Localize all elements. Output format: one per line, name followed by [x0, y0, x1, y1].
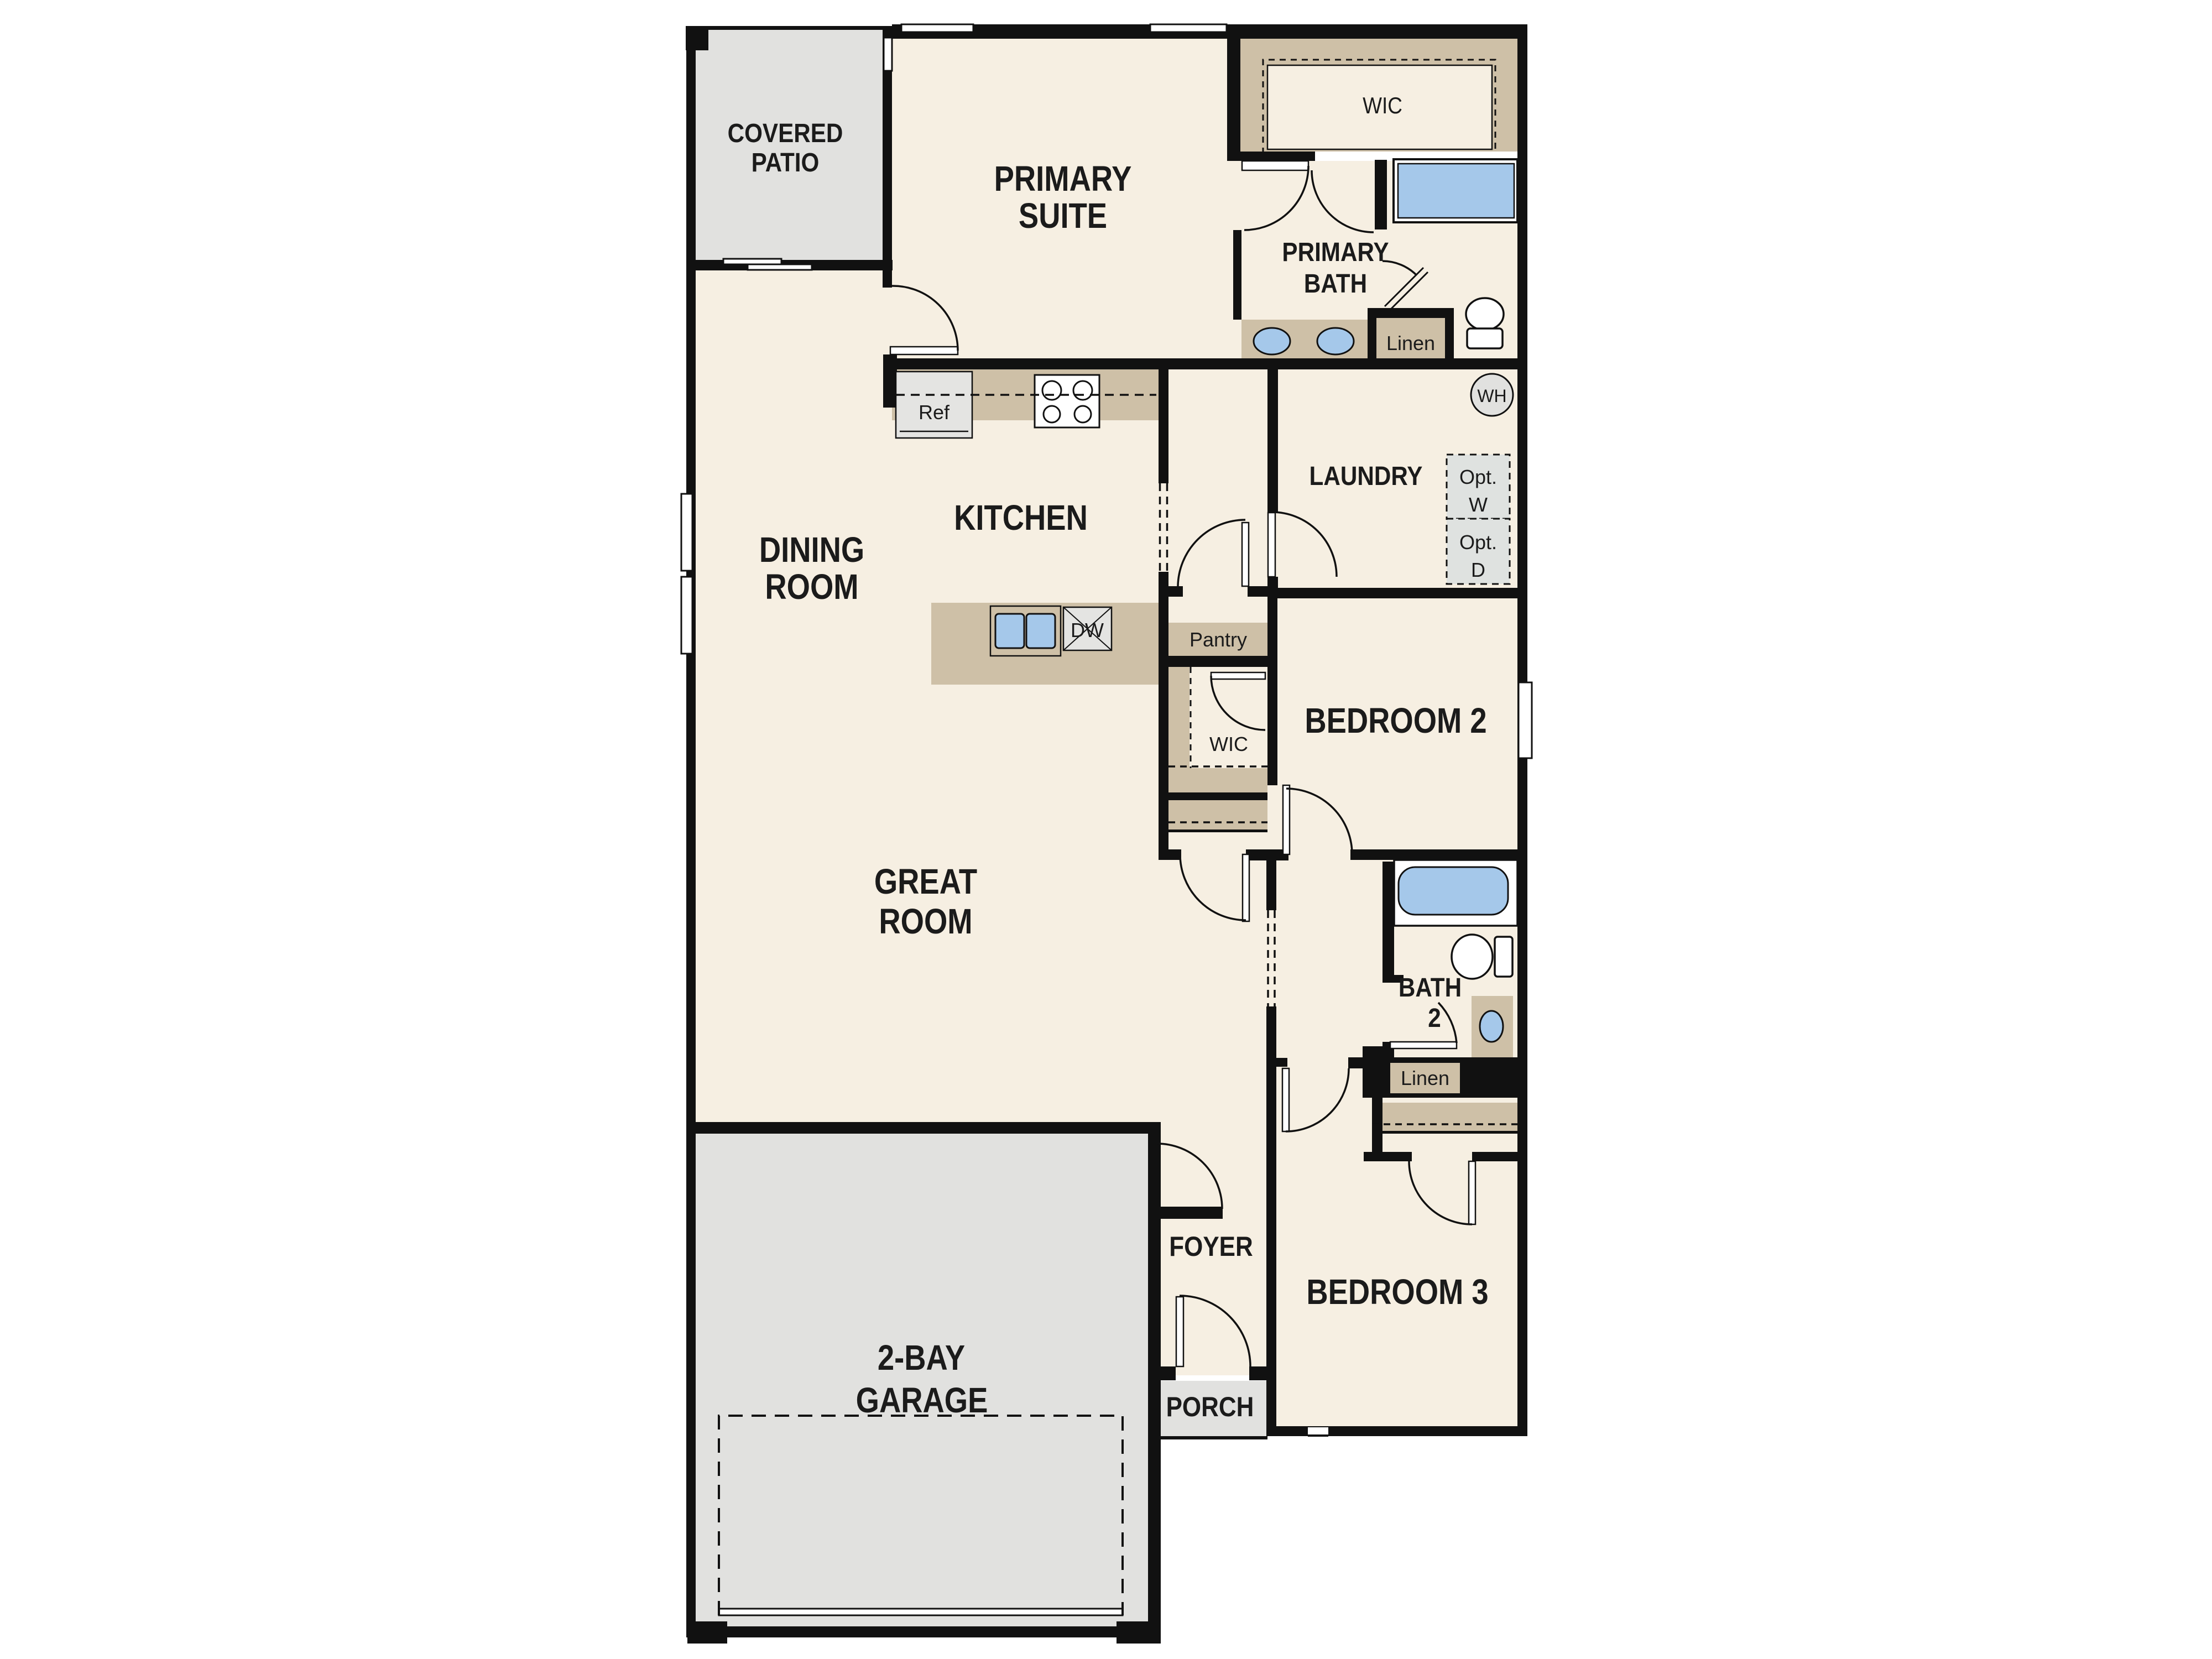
svg-text:Opt.: Opt.: [1459, 466, 1497, 488]
svg-text:2-BAY: 2-BAY: [878, 1338, 965, 1378]
svg-text:Ref: Ref: [919, 401, 950, 424]
svg-text:KITCHEN: KITCHEN: [954, 498, 1088, 538]
svg-text:BATH: BATH: [1399, 972, 1462, 1002]
svg-text:BEDROOM 3: BEDROOM 3: [1306, 1272, 1488, 1312]
svg-text:Pantry: Pantry: [1190, 628, 1247, 651]
svg-text:WIC: WIC: [1209, 733, 1248, 755]
svg-text:GREAT: GREAT: [874, 862, 977, 901]
svg-text:Linen: Linen: [1386, 332, 1435, 354]
svg-text:BATH: BATH: [1304, 268, 1367, 298]
svg-text:BEDROOM 2: BEDROOM 2: [1305, 701, 1486, 740]
svg-text:W: W: [1469, 493, 1488, 516]
svg-text:Opt.: Opt.: [1459, 531, 1497, 554]
svg-text:WIC: WIC: [1363, 93, 1402, 119]
svg-text:ROOM: ROOM: [879, 901, 972, 941]
svg-text:2: 2: [1428, 1003, 1441, 1032]
svg-text:LAUNDRY: LAUNDRY: [1310, 461, 1423, 491]
svg-text:SUITE: SUITE: [1019, 196, 1107, 236]
svg-text:COVERED: COVERED: [728, 118, 843, 148]
svg-text:GARAGE: GARAGE: [856, 1380, 988, 1420]
svg-text:PATIO: PATIO: [752, 147, 820, 177]
svg-text:ROOM: ROOM: [765, 567, 858, 607]
svg-text:Linen: Linen: [1401, 1067, 1449, 1089]
svg-text:D: D: [1471, 559, 1485, 581]
svg-text:DW: DW: [1071, 619, 1104, 641]
svg-text:PRIMARY: PRIMARY: [1282, 237, 1389, 267]
svg-text:FOYER: FOYER: [1169, 1230, 1253, 1261]
svg-text:PRIMARY: PRIMARY: [994, 159, 1132, 199]
svg-text:PORCH: PORCH: [1166, 1391, 1254, 1422]
svg-text:WH: WH: [1477, 386, 1506, 406]
svg-text:DINING: DINING: [759, 530, 864, 570]
